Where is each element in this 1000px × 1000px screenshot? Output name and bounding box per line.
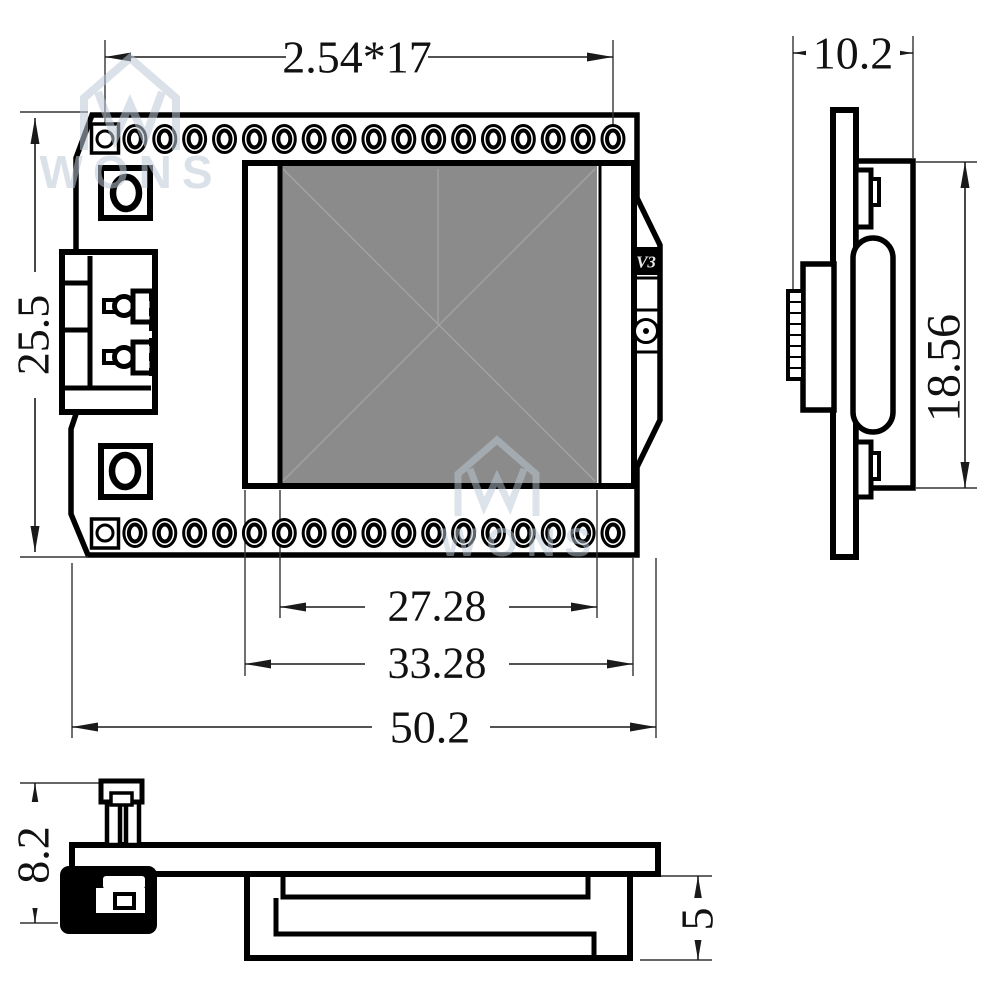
pin-hole-inner <box>487 131 499 148</box>
stadium-slot <box>853 238 893 432</box>
pin-hole-inner <box>607 131 619 148</box>
pin-hole-inner <box>428 131 440 148</box>
component-pin-header <box>101 781 142 845</box>
pin-hole-inner <box>219 525 231 542</box>
oled-display-module <box>245 163 634 486</box>
pin-hole-inner <box>428 525 440 542</box>
side-view <box>788 110 913 557</box>
pin-hole-inner <box>577 131 589 148</box>
technical-drawing-page: V3 <box>0 0 1000 1000</box>
pin-hole-inner <box>338 525 350 542</box>
pin-hole-inner <box>248 525 260 542</box>
pin-hole-inner <box>547 131 559 148</box>
pin-hole-inner <box>607 525 619 542</box>
dim-board-height: 25.5 <box>8 295 59 376</box>
dim-assembly-height: 8.2 <box>8 826 59 884</box>
pin-hole-inner <box>219 131 231 148</box>
drawing-svg: V3 <box>0 0 1000 1000</box>
usb-connector-front <box>62 252 156 412</box>
antenna-center-dot <box>643 328 649 334</box>
display-stack-bottom <box>247 876 630 958</box>
pin-hole-inner <box>338 131 350 148</box>
dim-board-width: 50.2 <box>390 702 471 753</box>
pin-hole-inner <box>159 525 171 542</box>
pin-hole-inner <box>248 131 260 148</box>
pin-hole-inner <box>308 131 320 148</box>
dim-module-height: 18.56 <box>918 314 971 422</box>
bottom-view <box>60 781 658 958</box>
pin-hole-inner <box>398 525 410 542</box>
dim-display-thickness: 5 <box>672 908 723 931</box>
pin-hole-inner <box>159 131 171 148</box>
version-label: V3 <box>636 253 656 272</box>
usb-connector-bottom <box>60 866 157 934</box>
pin-hole-inner <box>189 131 201 148</box>
pin-hole-inner <box>129 525 141 542</box>
pin1-bottom <box>92 519 119 548</box>
pin-hole-inner <box>517 131 529 148</box>
pin-hole-inner <box>458 131 470 148</box>
pin-hole-inner <box>308 525 320 542</box>
pin-hole-inner <box>398 131 410 148</box>
dim-side-width: 10.2 <box>813 28 894 79</box>
watermark-text-1: WONS <box>39 146 222 198</box>
mount-pad-bottom <box>101 446 150 497</box>
dim-active-width: 27.28 <box>388 582 487 631</box>
pin-hole-inner <box>278 131 290 148</box>
pcb-bottom-view <box>72 845 658 874</box>
watermark-text-2: WONS <box>440 521 600 565</box>
usb-connector-side <box>788 264 834 410</box>
dim-pin-pitch: 2.54*17 <box>282 32 432 83</box>
dim-display-width: 33.28 <box>388 639 487 688</box>
pin-hole-inner <box>368 525 380 542</box>
pin-hole-inner <box>189 525 201 542</box>
pin-hole-inner <box>368 131 380 148</box>
pin-hole-inner <box>278 525 290 542</box>
